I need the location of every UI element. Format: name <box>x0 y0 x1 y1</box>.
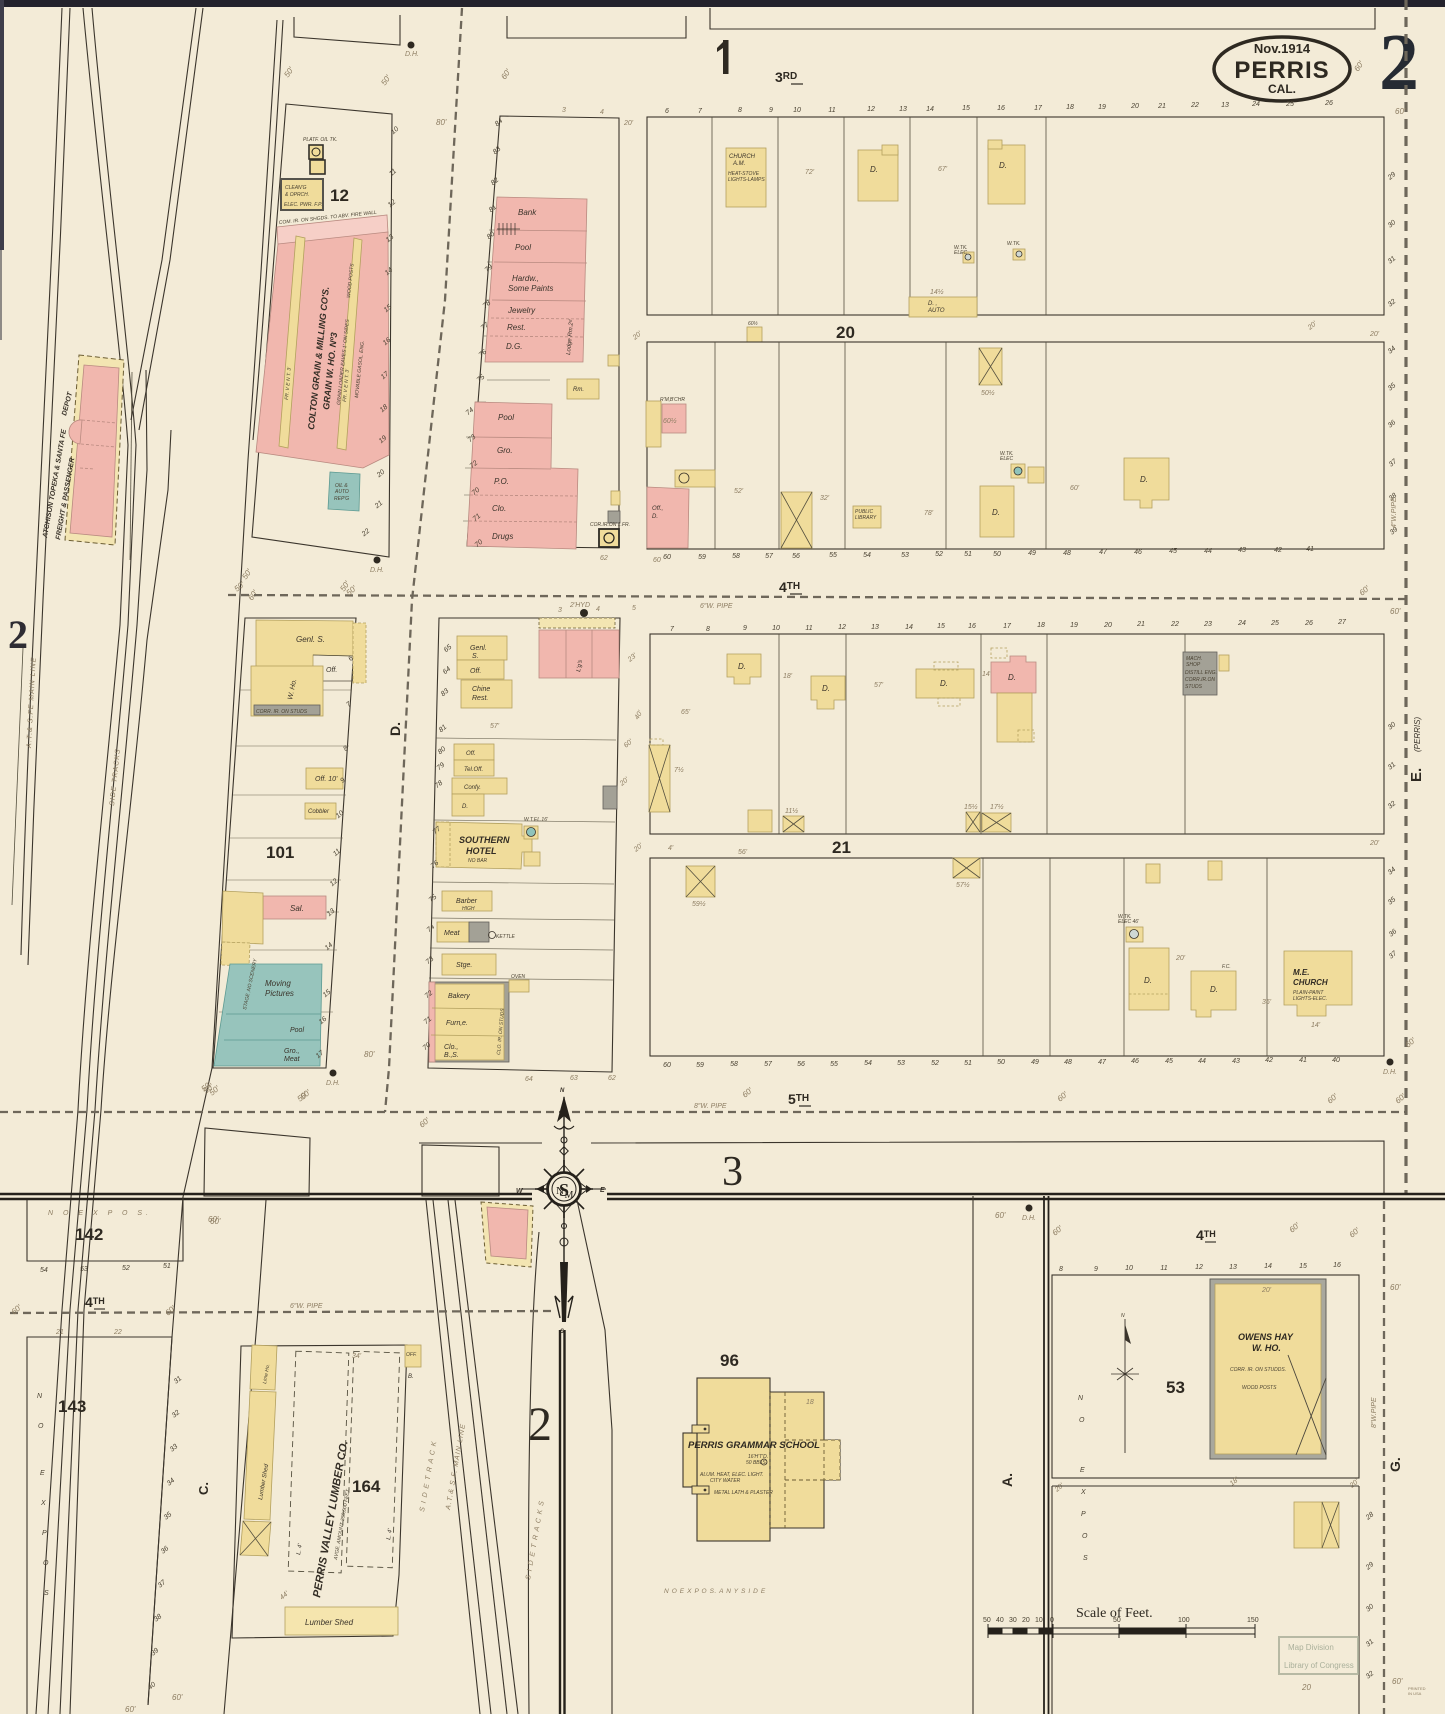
svg-text:C.: C. <box>196 1482 211 1495</box>
svg-text:SHOP: SHOP <box>1186 662 1201 668</box>
svg-text:20: 20 <box>1301 1683 1311 1692</box>
svg-text:14½: 14½ <box>930 288 944 296</box>
svg-text:D.: D. <box>1144 976 1152 985</box>
svg-text:4: 4 <box>600 109 604 116</box>
svg-text:D. ‚: D. ‚ <box>928 301 937 307</box>
svg-text:19: 19 <box>1098 104 1106 111</box>
svg-text:27: 27 <box>1337 619 1347 626</box>
svg-text:60': 60' <box>1395 107 1406 116</box>
svg-text:60½: 60½ <box>663 417 677 425</box>
svg-text:44: 44 <box>1198 1058 1206 1065</box>
svg-text:D.H.: D.H. <box>1383 1069 1397 1076</box>
svg-text:A.M.: A.M. <box>732 161 745 167</box>
svg-text:Gro.: Gro. <box>497 446 513 455</box>
svg-text:57: 57 <box>764 1061 773 1068</box>
svg-text:P.O.: P.O. <box>494 477 509 486</box>
svg-text:AUTO: AUTO <box>927 308 945 314</box>
svg-text:57: 57 <box>765 553 774 560</box>
svg-text:15: 15 <box>937 623 945 630</box>
svg-text:20': 20' <box>1369 331 1380 338</box>
svg-text:Off.: Off. <box>326 667 337 674</box>
svg-text:49: 49 <box>1028 550 1036 557</box>
svg-text:13: 13 <box>1221 102 1229 109</box>
svg-text:10: 10 <box>793 107 801 114</box>
svg-text:Some Paints: Some Paints <box>508 284 553 293</box>
svg-text:52': 52' <box>734 488 744 495</box>
svg-text:Jewelry: Jewelry <box>507 306 536 315</box>
svg-text:150: 150 <box>1247 1617 1259 1624</box>
svg-text:ELEC 46': ELEC 46' <box>1118 919 1140 925</box>
svg-text:30: 30 <box>1009 1617 1017 1624</box>
svg-text:X: X <box>1080 1489 1086 1496</box>
svg-text:2: 2 <box>528 1398 552 1451</box>
svg-text:62: 62 <box>600 555 608 562</box>
svg-text:21: 21 <box>55 1329 64 1336</box>
svg-text:57½: 57½ <box>956 881 970 889</box>
svg-text:52: 52 <box>935 551 943 558</box>
svg-text:16: 16 <box>968 623 976 630</box>
svg-text:60': 60' <box>172 1693 183 1702</box>
svg-text:6″W. PIPE: 6″W. PIPE <box>700 603 733 610</box>
svg-text:Genl. S.: Genl. S. <box>296 635 325 644</box>
svg-text:PERRIS: PERRIS <box>1234 57 1329 84</box>
svg-text:B.: B. <box>408 1374 414 1380</box>
svg-text:Furn‚e.: Furn‚e. <box>446 1020 468 1027</box>
svg-text:Pictures: Pictures <box>265 989 294 998</box>
svg-text:O: O <box>1079 1417 1085 1424</box>
svg-text:21: 21 <box>832 838 851 857</box>
svg-text:51: 51 <box>964 551 972 558</box>
svg-text:D.: D. <box>992 508 1000 517</box>
svg-text:X: X <box>40 1500 46 1507</box>
svg-text:E: E <box>1080 1467 1085 1474</box>
svg-text:20': 20' <box>623 120 634 127</box>
svg-text:& OPRCH.: & OPRCH. <box>285 192 309 198</box>
svg-text:20: 20 <box>1103 622 1112 629</box>
svg-text:142: 142 <box>75 1225 103 1244</box>
svg-text:53: 53 <box>1166 1378 1185 1397</box>
svg-text:59: 59 <box>698 554 706 561</box>
svg-text:N: N <box>556 1185 564 1197</box>
svg-text:18': 18' <box>783 673 793 680</box>
svg-text:D.: D. <box>387 722 403 736</box>
svg-text:54: 54 <box>40 1267 48 1274</box>
svg-text:51: 51 <box>964 1060 972 1067</box>
svg-text:54: 54 <box>863 552 871 559</box>
svg-text:20: 20 <box>1022 1617 1030 1624</box>
svg-text:60: 60 <box>653 557 661 564</box>
svg-text:OWENS HAY: OWENS HAY <box>1238 1332 1294 1342</box>
svg-text:LIGHTS-ELEC.: LIGHTS-ELEC. <box>1293 996 1327 1002</box>
svg-text:16: 16 <box>997 105 1005 112</box>
svg-text:D.: D. <box>652 514 658 520</box>
svg-text:Sal.: Sal. <box>290 904 304 913</box>
svg-text:CHURCH: CHURCH <box>729 154 756 160</box>
svg-text:40: 40 <box>996 1617 1004 1624</box>
svg-text:45: 45 <box>1165 1058 1173 1065</box>
svg-text:6″W. PIPE: 6″W. PIPE <box>290 1303 323 1310</box>
svg-text:50: 50 <box>993 551 1001 558</box>
svg-text:Moving: Moving <box>265 979 291 988</box>
svg-text:22: 22 <box>1170 621 1179 628</box>
svg-text:47: 47 <box>1098 1059 1107 1066</box>
svg-text:14': 14' <box>1311 1022 1321 1029</box>
svg-text:O: O <box>38 1423 44 1430</box>
svg-text:20': 20' <box>1261 1287 1272 1294</box>
svg-text:3: 3 <box>562 107 566 114</box>
svg-text:60': 60' <box>210 1217 221 1226</box>
svg-text:OFF.: OFF. <box>406 1352 417 1358</box>
svg-text:Off.: Off. <box>470 668 481 675</box>
svg-text:11: 11 <box>828 107 835 114</box>
svg-text:Rest.: Rest. <box>507 323 526 332</box>
svg-text:Lumber Shed: Lumber Shed <box>305 1618 354 1627</box>
svg-text:Genl.: Genl. <box>470 645 487 652</box>
svg-text:14: 14 <box>905 624 913 631</box>
svg-text:101: 101 <box>266 843 294 862</box>
svg-text:Rm.: Rm. <box>573 387 584 393</box>
svg-text:60: 60 <box>663 554 671 561</box>
svg-text:17: 17 <box>1034 105 1043 112</box>
svg-text:D.: D. <box>738 662 746 671</box>
svg-text:53: 53 <box>901 552 909 559</box>
svg-text:W.T.EL.16': W.T.EL.16' <box>524 817 549 823</box>
svg-text:46: 46 <box>1131 1058 1139 1065</box>
svg-text:CITY WATER: CITY WATER <box>710 1478 741 1484</box>
svg-text:43: 43 <box>1238 547 1246 554</box>
svg-text:M: M <box>565 1190 574 1201</box>
svg-text:21: 21 <box>1136 621 1145 628</box>
svg-text:M.E.: M.E. <box>1293 968 1309 977</box>
svg-text:Rest.: Rest. <box>472 695 488 702</box>
svg-text:16: 16 <box>1333 1262 1341 1269</box>
svg-text:80': 80' <box>364 1050 375 1059</box>
svg-text:60': 60' <box>1070 485 1080 492</box>
svg-text:D.H.: D.H. <box>405 51 419 58</box>
svg-text:58: 58 <box>730 1061 738 1068</box>
svg-text:HOTEL: HOTEL <box>466 846 497 856</box>
svg-text:11½: 11½ <box>785 807 798 815</box>
svg-text:Off.‚: Off.‚ <box>652 506 663 512</box>
svg-text:10: 10 <box>1035 1617 1043 1624</box>
svg-text:Bakery: Bakery <box>448 993 470 1000</box>
svg-text:7½: 7½ <box>674 766 684 774</box>
svg-text:56: 56 <box>792 553 800 560</box>
svg-text:Drugs: Drugs <box>492 532 513 541</box>
svg-text:CAL.: CAL. <box>1268 82 1296 96</box>
svg-text:KETTLE: KETTLE <box>496 934 516 940</box>
svg-text:Confy.: Confy. <box>464 785 481 791</box>
svg-text:20: 20 <box>836 323 855 342</box>
svg-text:Nov.1914: Nov.1914 <box>1254 41 1311 56</box>
svg-text:Chine: Chine <box>472 686 490 693</box>
svg-text:4″W.PIPE: 4″W.PIPE <box>1391 497 1398 528</box>
svg-text:52: 52 <box>122 1265 130 1272</box>
svg-text:24: 24 <box>1237 620 1246 627</box>
svg-text:ELEC: ELEC <box>1000 456 1013 462</box>
svg-text:8: 8 <box>1059 1266 1063 1273</box>
svg-text:CHURCH: CHURCH <box>1293 978 1328 987</box>
svg-text:Pool: Pool <box>515 243 531 252</box>
svg-text:23: 23 <box>1203 621 1212 628</box>
svg-text:48: 48 <box>1063 550 1071 557</box>
svg-text:34': 34' <box>352 1353 362 1360</box>
svg-text:O: O <box>1082 1533 1088 1540</box>
svg-text:22: 22 <box>113 1329 122 1336</box>
svg-text:41: 41 <box>1306 546 1314 553</box>
svg-text:NO BAR: NO BAR <box>468 858 488 864</box>
svg-text:60': 60' <box>1392 1677 1403 1686</box>
svg-text:Stge.: Stge. <box>456 962 472 969</box>
svg-text:17½: 17½ <box>990 803 1004 811</box>
svg-text:S: S <box>1083 1555 1088 1562</box>
svg-text:CORR. IR. ON STUDS: CORR. IR. ON STUDS <box>256 709 308 715</box>
svg-text:59: 59 <box>696 1062 704 1069</box>
svg-text:3: 3 <box>722 1149 743 1195</box>
svg-text:64: 64 <box>525 1076 533 1083</box>
svg-text:58: 58 <box>732 553 740 560</box>
svg-text:15: 15 <box>962 105 970 112</box>
svg-text:PERRIS GRAMMAR SCHOOL: PERRIS GRAMMAR SCHOOL <box>688 1440 820 1451</box>
svg-text:32': 32' <box>820 495 830 502</box>
svg-text:6: 6 <box>665 108 669 115</box>
svg-text:25: 25 <box>1270 620 1279 627</box>
svg-text:AUTO: AUTO <box>334 489 349 495</box>
svg-text:11: 11 <box>1160 1265 1167 1272</box>
svg-text:143: 143 <box>58 1397 86 1416</box>
svg-text:W.TK.: W.TK. <box>1007 241 1021 247</box>
svg-text:4: 4 <box>596 606 600 613</box>
svg-text:SOUTHERN: SOUTHERN <box>459 835 510 845</box>
svg-text:8″W. PIPE: 8″W. PIPE <box>694 1103 727 1110</box>
svg-text:44: 44 <box>1204 548 1212 555</box>
svg-text:20: 20 <box>1130 103 1139 110</box>
svg-text:25: 25 <box>1285 101 1294 108</box>
svg-text:26: 26 <box>1324 100 1333 107</box>
svg-text:3: 3 <box>558 607 562 614</box>
svg-text:Hardw.‚: Hardw.‚ <box>512 274 539 283</box>
svg-text:Meat: Meat <box>284 1056 301 1063</box>
svg-text:ELEC: ELEC <box>954 250 967 256</box>
svg-text:(PERRIS): (PERRIS) <box>1413 717 1422 752</box>
svg-text:STUDS: STUDS <box>1185 684 1203 690</box>
svg-text:HIGH: HIGH <box>462 906 475 912</box>
svg-text:20': 20' <box>1369 840 1380 847</box>
svg-text:D.H.: D.H. <box>370 567 384 574</box>
svg-text:26: 26 <box>1304 620 1313 627</box>
svg-text:D.: D. <box>1140 475 1148 484</box>
svg-text:8: 8 <box>706 626 710 633</box>
svg-text:51: 51 <box>163 1263 171 1270</box>
svg-text:18: 18 <box>1066 104 1074 111</box>
svg-text:13: 13 <box>1229 1264 1237 1271</box>
svg-text:E: E <box>40 1470 45 1477</box>
svg-text:D.: D. <box>999 161 1007 170</box>
svg-text:60: 60 <box>663 1062 671 1069</box>
svg-text:65': 65' <box>681 709 691 716</box>
svg-text:164: 164 <box>352 1477 381 1496</box>
svg-text:N O E X P O S.: N O E X P O S. <box>48 1210 152 1217</box>
svg-text:50: 50 <box>997 1059 1005 1066</box>
svg-text:D.: D. <box>940 679 948 688</box>
svg-text:10: 10 <box>772 625 780 632</box>
svg-text:Meat: Meat <box>444 930 461 937</box>
svg-text:O: O <box>43 1560 49 1567</box>
svg-text:LIBRARY: LIBRARY <box>855 515 877 521</box>
svg-text:49: 49 <box>1031 1059 1039 1066</box>
svg-text:60': 60' <box>1390 1283 1401 1292</box>
svg-text:IN USA: IN USA <box>1408 1691 1422 1696</box>
svg-text:Off. 10': Off. 10' <box>315 776 338 783</box>
svg-text:15: 15 <box>1299 1263 1307 1270</box>
svg-text:0: 0 <box>1050 1617 1054 1624</box>
svg-text:2: 2 <box>1379 19 1419 107</box>
svg-text:W. HO.: W. HO. <box>1252 1343 1281 1353</box>
svg-text:ELEC. PWR. F.P.: ELEC. PWR. F.P. <box>284 202 322 208</box>
svg-text:Library of Congress: Library of Congress <box>1284 1661 1354 1670</box>
svg-text:17: 17 <box>1003 623 1012 630</box>
svg-text:53: 53 <box>897 1060 905 1067</box>
svg-text:D.: D. <box>1210 985 1218 994</box>
svg-text:12: 12 <box>838 624 846 631</box>
svg-text:54: 54 <box>864 1060 872 1067</box>
svg-text:100: 100 <box>1178 1617 1190 1624</box>
svg-text:WOOD POSTS: WOOD POSTS <box>1242 1385 1277 1391</box>
svg-text:E: E <box>600 1187 605 1194</box>
svg-text:63: 63 <box>570 1075 578 1082</box>
svg-text:18: 18 <box>1037 622 1045 629</box>
svg-text:21: 21 <box>1157 103 1166 110</box>
svg-text:S: S <box>44 1590 49 1597</box>
svg-text:56': 56' <box>738 849 748 856</box>
svg-text:80': 80' <box>436 118 447 127</box>
svg-text:60': 60' <box>1390 607 1401 616</box>
svg-text:D.: D. <box>462 804 468 810</box>
svg-text:50½: 50½ <box>981 389 995 397</box>
svg-text:D.H.: D.H. <box>1022 1215 1036 1222</box>
svg-text:15½: 15½ <box>964 803 978 811</box>
svg-text:36': 36' <box>1262 999 1272 1006</box>
svg-text:P: P <box>1081 1511 1086 1518</box>
svg-text:D.G.: D.G. <box>506 342 522 351</box>
svg-text:60': 60' <box>995 1211 1006 1220</box>
svg-text:72': 72' <box>805 169 815 176</box>
svg-text:N O E X P O S. A N Y S I D: N O E X P O S. A N Y S I D E <box>664 1588 766 1595</box>
svg-text:CLEAN'G: CLEAN'G <box>285 185 307 191</box>
svg-text:D.H.: D.H. <box>326 1080 340 1087</box>
svg-text:50: 50 <box>983 1617 991 1624</box>
svg-text:50: 50 <box>1113 1617 1121 1624</box>
svg-text:5: 5 <box>632 605 636 612</box>
svg-text:55: 55 <box>830 1061 838 1068</box>
svg-text:43: 43 <box>1232 1058 1240 1065</box>
svg-text:LIGHTS-LAMPS: LIGHTS-LAMPS <box>728 177 765 183</box>
svg-text:46: 46 <box>1134 549 1142 556</box>
svg-text:D.: D. <box>870 165 878 174</box>
svg-text:57': 57' <box>490 723 500 730</box>
svg-text:67': 67' <box>938 166 948 173</box>
svg-text:60': 60' <box>125 1705 136 1714</box>
svg-text:24: 24 <box>1251 101 1260 108</box>
svg-text:Pool: Pool <box>290 1027 304 1034</box>
svg-text:2: 2 <box>8 612 28 657</box>
svg-text:14: 14 <box>926 106 934 113</box>
svg-text:9: 9 <box>743 625 747 632</box>
svg-text:62: 62 <box>608 1075 616 1082</box>
svg-text:D.: D. <box>822 684 830 693</box>
svg-text:8″W.PIPE: 8″W.PIPE <box>1371 1397 1378 1428</box>
svg-text:19: 19 <box>1070 622 1078 629</box>
svg-text:13: 13 <box>871 624 879 631</box>
svg-text:A.: A. <box>999 1473 1015 1487</box>
svg-text:9: 9 <box>1094 1266 1098 1273</box>
svg-text:REP'G: REP'G <box>334 496 349 502</box>
svg-text:F.C.: F.C. <box>1222 964 1231 970</box>
svg-text:48: 48 <box>1064 1059 1072 1066</box>
svg-text:12: 12 <box>1195 1264 1203 1271</box>
svg-text:45: 45 <box>1169 548 1177 555</box>
svg-text:Map Division: Map Division <box>1288 1643 1334 1652</box>
svg-text:COR.IR.ON 1.FR.: COR.IR.ON 1.FR. <box>590 522 630 528</box>
svg-text:10: 10 <box>1125 1265 1133 1272</box>
svg-text:20': 20' <box>1175 955 1186 962</box>
svg-text:S.: S. <box>472 653 479 660</box>
svg-text:8: 8 <box>738 107 742 114</box>
svg-text:PLATF. OIL TK.: PLATF. OIL TK. <box>303 137 337 143</box>
svg-text:CORR.IR.ON: CORR.IR.ON <box>1185 677 1215 683</box>
svg-text:42: 42 <box>1274 547 1282 554</box>
svg-text:96: 96 <box>720 1351 739 1370</box>
svg-text:DISTILL ENG.: DISTILL ENG. <box>1185 670 1217 676</box>
svg-text:22: 22 <box>1190 102 1199 109</box>
svg-text:Gro.‚: Gro.‚ <box>284 1048 299 1055</box>
svg-text:N: N <box>560 1088 565 1094</box>
svg-text:14: 14 <box>1264 1263 1272 1270</box>
svg-text:2'HYD: 2'HYD <box>569 602 590 609</box>
svg-text:12: 12 <box>330 186 349 205</box>
svg-text:47: 47 <box>1099 549 1108 556</box>
svg-text:42: 42 <box>1265 1057 1273 1064</box>
svg-text:Pool: Pool <box>498 413 514 422</box>
svg-text:CORR. IR. ON STUDDS.: CORR. IR. ON STUDDS. <box>1230 1367 1286 1373</box>
svg-text:78': 78' <box>924 510 934 517</box>
svg-text:METAL LATH & PLASTER: METAL LATH & PLASTER <box>714 1490 773 1496</box>
svg-text:11: 11 <box>805 625 812 632</box>
svg-text:Clo.‚: Clo.‚ <box>444 1044 458 1051</box>
svg-text:D.: D. <box>1008 673 1016 682</box>
svg-text:53: 53 <box>80 1266 88 1273</box>
svg-text:14': 14' <box>982 671 992 678</box>
svg-text:18: 18 <box>806 1399 814 1406</box>
svg-text:E.: E. <box>1408 768 1425 782</box>
svg-text:Off.: Off. <box>466 751 476 757</box>
svg-text:60½: 60½ <box>748 320 759 327</box>
svg-text:Tel.Off.: Tel.Off. <box>464 767 483 773</box>
svg-text:9: 9 <box>769 107 773 114</box>
svg-text:12: 12 <box>867 106 875 113</box>
svg-text:P: P <box>42 1530 47 1537</box>
svg-text:13: 13 <box>899 106 907 113</box>
svg-text:Bank: Bank <box>518 208 537 217</box>
svg-text:40: 40 <box>1332 1057 1340 1064</box>
svg-text:41: 41 <box>1299 1057 1307 1064</box>
svg-text:Cobbler: Cobbler <box>308 809 330 815</box>
svg-text:56: 56 <box>797 1061 805 1068</box>
svg-text:Clo.: Clo. <box>492 504 506 513</box>
svg-text:52: 52 <box>931 1060 939 1067</box>
svg-text:59½: 59½ <box>692 900 706 908</box>
svg-text:N: N <box>1121 1313 1125 1319</box>
